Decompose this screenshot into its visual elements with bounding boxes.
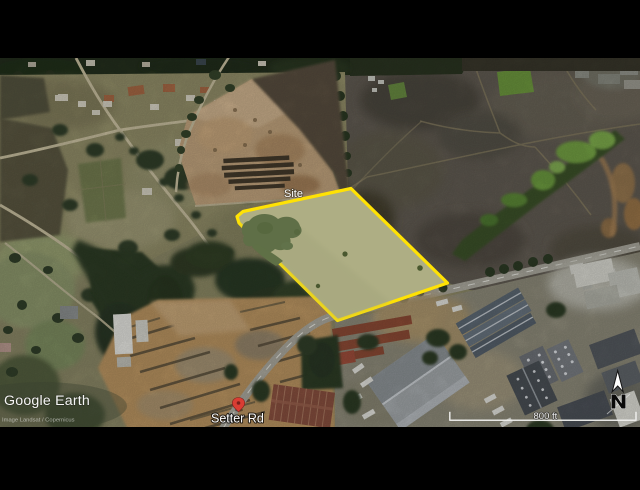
svg-text:Google Earth: Google Earth xyxy=(4,393,90,409)
svg-text:Site: Site xyxy=(284,188,303,200)
svg-text:Image Landsat / Copernicus: Image Landsat / Copernicus xyxy=(2,418,75,424)
svg-text:Setter Rd: Setter Rd xyxy=(211,412,264,426)
svg-text:800 ft: 800 ft xyxy=(534,411,558,422)
